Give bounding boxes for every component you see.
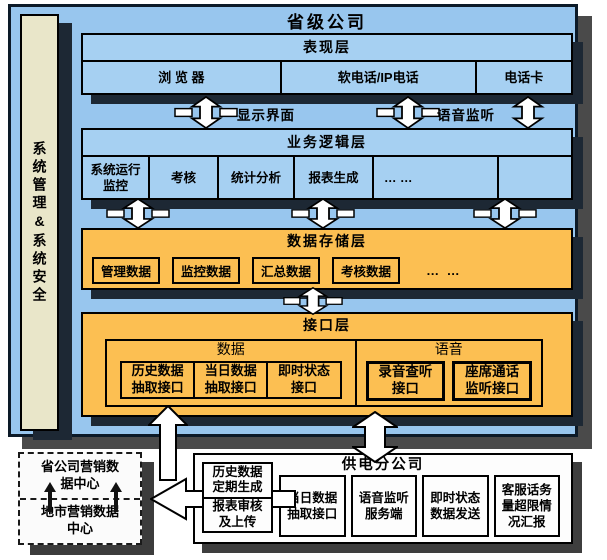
realtime-status-data-sending: 即时状态数据发送 <box>422 475 489 537</box>
diagram-title: 省级公司 <box>81 8 573 33</box>
historical-data-periodic-generation: 历史数据定期生成 <box>204 464 271 497</box>
report-generation-cell: 报表生成 <box>295 157 374 200</box>
daily-data-extraction-interface: 当日数据抽取接口 <box>195 361 268 399</box>
data-storage-boxes: 管理数据 监控数据 汇总数据 考核数据 … … <box>92 255 571 285</box>
agent-call-monitoring-interface: 座席通话监听接口 <box>452 361 532 401</box>
marketing-data-centers-box: 省公司营销数据中心 地市营销数据中心 <box>18 452 142 545</box>
presentation-layer-cells: 浏 览 器 软电话/IP电话 电话卡 <box>83 62 571 95</box>
presentation-layer-panel: 表现层 浏 览 器 软电话/IP电话 电话卡 <box>81 33 573 95</box>
up-arrow-icon <box>148 405 188 481</box>
management-data-box: 管理数据 <box>92 257 160 284</box>
voice-group-label: 语音 <box>357 341 541 361</box>
assessment-data-box: 考核数据 <box>332 257 400 284</box>
small-up-arrow-icon <box>44 482 56 512</box>
more-data-ellipsis: … … <box>426 263 462 278</box>
historical-data-extraction-interface: 历史数据抽取接口 <box>120 361 195 399</box>
double-arrow-icon <box>504 96 552 129</box>
architecture-diagram: 省级公司 系统管理&系统安全 表现层 浏 览 器 软电话/IP电话 电话卡 显示… <box>0 0 607 560</box>
call-volume-overlimit-report: 客服话务量超限情况汇报 <box>494 475 561 537</box>
system-operation-monitoring-cell: 系统运行监控 <box>83 157 150 200</box>
data-group-label: 数据 <box>107 341 355 361</box>
interface-layer-panel: 接口层 数据 历史数据抽取接口 当日数据抽取接口 即时状态接口 语音 录音查听接… <box>81 312 573 417</box>
voice-monitoring-server: 语音监听服务端 <box>351 475 418 537</box>
business-logic-layer-title: 业务逻辑层 <box>83 130 571 157</box>
empty-cell <box>499 157 571 200</box>
voice-monitoring-label: 语音监听 <box>437 104 495 124</box>
double-arrow-icon <box>174 96 238 129</box>
small-up-arrow-icon <box>110 482 122 512</box>
provincial-marketing-data-center: 省公司营销数据中心 <box>20 454 140 498</box>
sidebar-label: 系统管理&系统安全 <box>30 141 50 305</box>
voice-interface-boxes: 录音查听接口 座席通话监听接口 <box>366 361 532 401</box>
data-interface-cells: 历史数据抽取接口 当日数据抽取接口 即时状态接口 <box>120 361 342 399</box>
summary-data-box: 汇总数据 <box>252 257 320 284</box>
business-logic-cells: 系统运行监控 考核 统计分析 报表生成 … … <box>83 157 571 200</box>
realtime-status-interface: 即时状态接口 <box>268 361 341 399</box>
report-review-and-upload: 报表审核及上传 <box>204 497 271 532</box>
presentation-layer-title: 表现层 <box>83 35 571 62</box>
business-logic-layer-panel: 业务逻辑层 系统运行监控 考核 统计分析 报表生成 … … <box>81 128 573 200</box>
display-interface-label: 显示界面 <box>237 104 295 124</box>
more-modules-cell: … … <box>374 157 499 200</box>
monitoring-data-box: 监控数据 <box>172 257 240 284</box>
double-arrow-icon <box>376 96 440 129</box>
voice-interface-group: 语音 录音查听接口 座席通话监听接口 <box>357 341 541 405</box>
recording-playback-interface: 录音查听接口 <box>366 361 446 401</box>
double-arrow-icon <box>352 411 398 463</box>
phone-card-cell: 电话卡 <box>475 62 571 95</box>
double-arrow-icon <box>106 198 170 229</box>
city-marketing-data-center: 地市营销数据中心 <box>20 498 140 544</box>
data-storage-layer-title: 数据存储层 <box>83 230 571 253</box>
double-arrow-icon <box>283 287 343 315</box>
softphone-ip-phone-cell: 软电话/IP电话 <box>280 62 475 95</box>
system-management-security-bar: 系统管理&系统安全 <box>20 14 59 431</box>
double-arrow-icon <box>473 198 537 229</box>
report-generation-upload-box: 历史数据定期生成 报表审核及上传 <box>202 462 273 533</box>
statistical-analysis-cell: 统计分析 <box>219 157 295 200</box>
data-interface-group: 数据 历史数据抽取接口 当日数据抽取接口 即时状态接口 <box>107 341 357 405</box>
interface-layer-title: 接口层 <box>83 314 571 337</box>
browser-cell: 浏 览 器 <box>83 62 280 95</box>
double-arrow-icon <box>291 198 355 229</box>
assessment-cell: 考核 <box>150 157 219 200</box>
branch-boxes: 当日数据抽取接口 语音监听服务端 即时状态数据发送 客服话务量超限情况汇报 <box>279 475 560 537</box>
data-storage-layer-panel: 数据存储层 管理数据 监控数据 汇总数据 考核数据 … … <box>81 228 573 290</box>
interface-groups-box: 数据 历史数据抽取接口 当日数据抽取接口 即时状态接口 语音 录音查听接口 座席… <box>105 339 543 407</box>
